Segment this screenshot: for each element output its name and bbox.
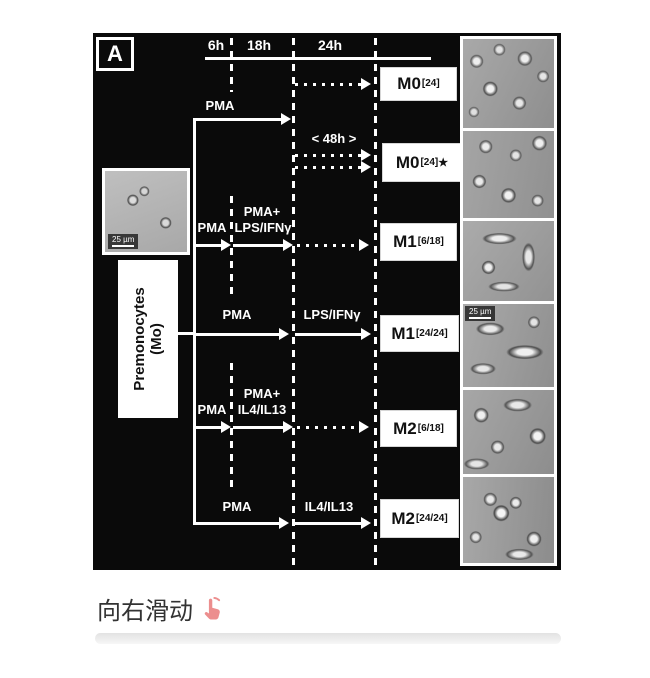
premonocyte-micrograph: 25 µm xyxy=(102,168,190,255)
row2-dotted-arrow-upper xyxy=(295,154,361,157)
row2-arrowhead-lower xyxy=(361,161,371,173)
timeline-tick-24h: 24h xyxy=(312,37,348,53)
timeline-axis xyxy=(205,57,431,60)
dashed-boundary-6h-top xyxy=(230,38,233,92)
row3-arrow-seg1 xyxy=(193,244,221,247)
row5-arrowhead-seg2 xyxy=(283,421,293,433)
row1-pma-arrow xyxy=(193,118,281,121)
dashed-boundary-24h xyxy=(374,38,377,566)
row4-arrow-seg1 xyxy=(193,333,279,336)
result-box-m2-6-18: M2[6/18] xyxy=(380,410,457,447)
row5-stimulus-label: IL4/IL13 xyxy=(227,403,297,417)
dashed-boundary-18h xyxy=(292,38,295,566)
row5-dotted-arrow xyxy=(297,426,359,429)
result-box-m2-24-24: M2[24/24] xyxy=(380,499,459,538)
source-box: Premonocytes (Mo) xyxy=(118,260,178,418)
row2-48h-note: < 48h > xyxy=(298,132,370,146)
source-box-label: Premonocytes (Mo) xyxy=(131,260,165,418)
timeline-tick-6h: 6h xyxy=(198,37,234,53)
row5-pma-plus-label: PMA+ xyxy=(240,387,284,401)
row3-arrow-seg2 xyxy=(233,244,283,247)
row1-rest-arrowhead xyxy=(361,78,371,90)
timeline-tick-18h: 18h xyxy=(241,37,277,53)
micrograph-m0-24-star xyxy=(463,131,554,218)
row4-stimulus-label: LPS/IFNγ xyxy=(296,308,368,322)
pointing-up-finger-icon xyxy=(199,595,226,622)
row6-arrowhead-seg2 xyxy=(361,517,371,529)
figure-panel-a[interactable]: A 6h 18h 24h Premonocytes (Mo) 25 µm xyxy=(93,33,561,570)
micrograph-m0-24 xyxy=(463,39,554,128)
row2-dotted-arrow-lower xyxy=(295,166,361,169)
micrograph-column: 25 µm xyxy=(460,36,557,566)
panel-letter-badge: A xyxy=(96,37,134,71)
row3-pma-plus-label: PMA+ xyxy=(240,205,284,219)
row3-stimulus-label: LPS/IFNγ xyxy=(229,221,297,235)
next-card-edge xyxy=(95,633,561,644)
row3-pma-label: PMA xyxy=(190,221,234,235)
row3-dotted-arrowhead xyxy=(359,239,369,251)
swipe-hint[interactable]: 向右滑动 xyxy=(97,591,226,626)
row1-pma-arrowhead xyxy=(281,113,291,125)
micrograph-m2-24-24 xyxy=(463,477,554,563)
source-connector-line xyxy=(178,332,194,335)
row4-arrowhead-seg1 xyxy=(279,328,289,340)
scale-bar-line xyxy=(112,245,134,247)
micrograph-m1-6-18 xyxy=(463,221,554,301)
scale-bar: 25 µm xyxy=(465,306,495,321)
micrograph-m1-24-24: 25 µm xyxy=(463,304,554,387)
row2-arrowhead-upper xyxy=(361,149,371,161)
article-image-page: A 6h 18h 24h Premonocytes (Mo) 25 µm xyxy=(0,0,650,678)
result-box-m0-24: M0[24] xyxy=(380,67,457,101)
row3-dotted-arrow xyxy=(297,244,359,247)
scale-bar: 25 µm xyxy=(108,234,138,249)
row4-arrowhead-seg2 xyxy=(361,328,371,340)
scale-bar-line xyxy=(469,317,491,319)
trunk-line xyxy=(193,119,196,524)
row3-arrowhead-seg2 xyxy=(283,239,293,251)
row4-pma-label: PMA xyxy=(215,308,259,322)
row6-arrowhead-seg1 xyxy=(279,517,289,529)
result-box-m1-6-18: M1[6/18] xyxy=(380,223,457,261)
row3-arrowhead-seg1 xyxy=(221,239,231,251)
row6-arrow-seg2 xyxy=(295,522,361,525)
result-box-m0-24-star: M0[24]★ xyxy=(382,143,462,182)
row5-arrow-seg1 xyxy=(193,426,221,429)
row6-stimulus-label: IL4/IL13 xyxy=(294,500,364,514)
row1-rest-dotted-arrow xyxy=(295,83,361,86)
row4-arrow-seg2 xyxy=(295,333,361,336)
row1-pma-label: PMA xyxy=(196,99,244,113)
swipe-hint-text: 向右滑动 xyxy=(97,591,193,626)
row6-arrow-seg1 xyxy=(193,522,279,525)
result-box-m1-24-24: M1[24/24] xyxy=(380,315,459,352)
row5-arrowhead-seg1 xyxy=(221,421,231,433)
micrograph-m2-6-18 xyxy=(463,390,554,474)
row5-dotted-arrowhead xyxy=(359,421,369,433)
row5-arrow-seg2 xyxy=(233,426,283,429)
row6-pma-label: PMA xyxy=(215,500,259,514)
